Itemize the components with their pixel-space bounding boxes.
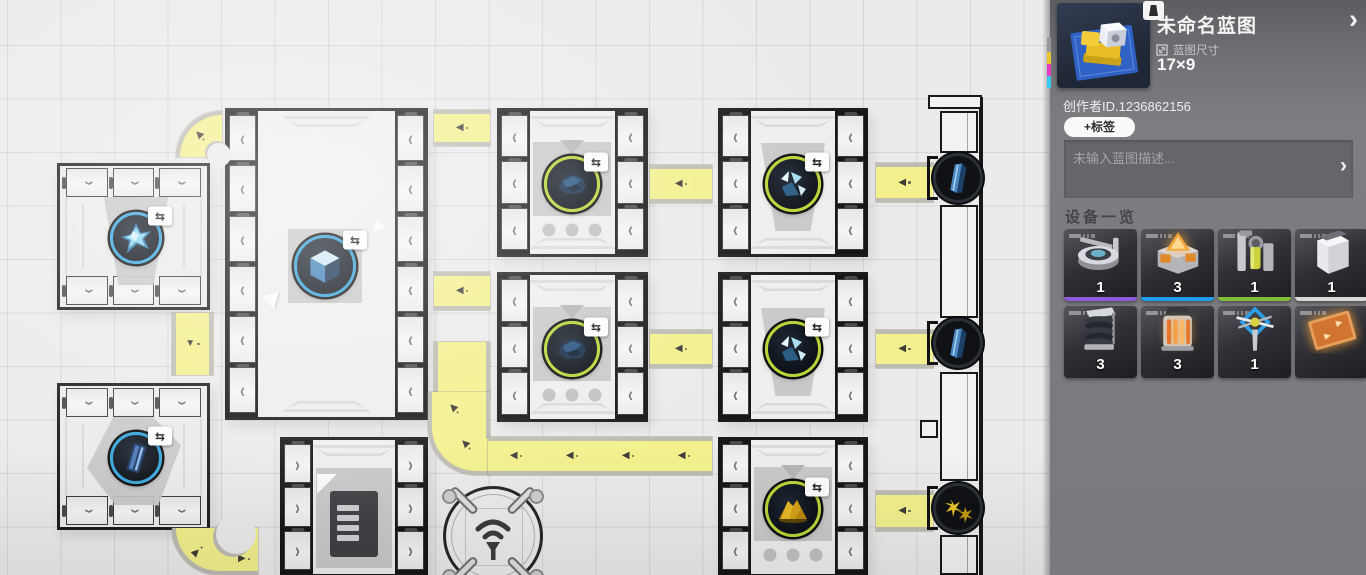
storage-cabinet-icon: [1301, 229, 1363, 282]
port-door[interactable]: ‹: [722, 208, 749, 250]
equipment-count: 1: [1218, 280, 1291, 295]
transfer-badge[interactable]: ⇆: [148, 427, 172, 446]
conveyor-belt[interactable]: ◀: [650, 165, 712, 203]
port-door[interactable]: ›: [284, 531, 311, 570]
port-door[interactable]: ‹: [617, 326, 644, 369]
title-chevron[interactable]: ›: [1349, 4, 1358, 35]
transfer-badge[interactable]: ⇆: [805, 478, 829, 497]
machine-footprint: [543, 389, 602, 402]
port-door[interactable]: ›: [397, 444, 424, 483]
port-door[interactable]: ‹: [397, 165, 424, 211]
conveyor-belt[interactable]: ▼: [172, 313, 213, 375]
equipment-count: 3: [1064, 357, 1137, 372]
ramp-decor: [750, 403, 837, 414]
crystal-refinery[interactable]: ‹ ‹ ‹ ‹ ‹ ‹ ⇆: [718, 108, 868, 257]
port-door[interactable]: ›: [397, 531, 424, 570]
color-strip: [1047, 52, 1051, 64]
wall-decor: [65, 417, 84, 496]
port-door[interactable]: ‹: [66, 496, 108, 525]
equipment-tile-furnace[interactable]: 3: [1141, 306, 1214, 378]
crystal-refinery[interactable]: ‹ ‹ ‹ ‹ ‹ ‹ ⇆: [718, 272, 868, 422]
wall-panel: [940, 205, 978, 318]
size-value: 17×9: [1157, 55, 1195, 75]
transfer-badge[interactable]: ⇆: [584, 153, 608, 172]
port-door[interactable]: ‹: [397, 266, 424, 312]
supply-room[interactable]: › › › › › ›: [280, 437, 428, 575]
tower-bolt: [442, 569, 457, 575]
port-door[interactable]: ‹: [159, 168, 201, 197]
port-door[interactable]: ‹: [837, 487, 864, 526]
rarity-bar: [1218, 374, 1291, 378]
conveyor-curve[interactable]: ◀ ◀: [428, 392, 490, 475]
port-door[interactable]: ‹: [722, 326, 749, 369]
conveyor-panel-icon: [1301, 306, 1363, 359]
port-door[interactable]: ‹: [229, 367, 256, 413]
equipment-tile-assembler[interactable]: 1: [1064, 229, 1137, 301]
port-door[interactable]: ‹: [722, 279, 749, 322]
port-door[interactable]: ‹: [722, 444, 749, 483]
equipment-tile-conveyor-panel[interactable]: [1295, 306, 1366, 378]
ore-node-blue[interactable]: [933, 153, 983, 203]
conveyor-belt[interactable]: ◀: [434, 110, 490, 146]
rarity-bar: [1295, 374, 1366, 378]
conveyor-curve[interactable]: ◀: [176, 111, 222, 157]
port-door[interactable]: ‹: [837, 208, 864, 250]
extractor-column-icon: [1224, 229, 1286, 282]
ramp-decor: [529, 280, 617, 291]
antenna-signal-icon: [471, 512, 515, 565]
machine-footprint: [543, 224, 602, 237]
tower-bolt: [529, 489, 544, 504]
port-door[interactable]: ‹: [229, 316, 256, 362]
port-door[interactable]: ›: [284, 444, 311, 483]
port-door[interactable]: ›: [284, 487, 311, 526]
port-door[interactable]: ‹: [617, 372, 644, 415]
ramp-decor: [750, 116, 837, 127]
transfer-badge[interactable]: ⇆: [805, 318, 829, 337]
rarity-bar: [1064, 297, 1137, 301]
ramp-decor: [750, 445, 837, 456]
port-door[interactable]: ‹: [722, 531, 749, 570]
blueprint-canvas[interactable]: ‹ ‹ ‹ ‹ ‹ ‹ ⇆ ‹ ‹ ‹ ‹ ‹ ‹: [0, 0, 1050, 575]
blueprint-title: 未命名蓝图: [1157, 11, 1257, 38]
conveyor-belt[interactable]: ◀: [876, 163, 933, 202]
powder-refinery[interactable]: ‹ ‹ ‹ ‹ ‹ ‹ ⇆: [718, 437, 868, 575]
port-door[interactable]: ‹: [617, 208, 644, 250]
port-door[interactable]: ‹: [229, 165, 256, 211]
port-door[interactable]: ‹: [159, 388, 201, 417]
ore-node-gold[interactable]: [933, 483, 983, 533]
wall-panel: [940, 535, 978, 575]
ramp-decor: [529, 403, 617, 414]
port-door[interactable]: ‹: [501, 161, 528, 203]
conveyor-belt[interactable]: ◀: [434, 272, 490, 310]
wall-panel: [940, 372, 978, 481]
wall-decor: [183, 417, 202, 496]
conveyor-belt[interactable]: ◀: [876, 491, 933, 531]
equipment-count: 3: [1141, 357, 1214, 372]
port-door[interactable]: ‹: [159, 276, 201, 305]
wall-panel: [940, 111, 978, 153]
creator-id: 创作者ID.1236862156: [1063, 96, 1191, 115]
equipment-tile-smelter[interactable]: 3: [1141, 229, 1214, 301]
port-door[interactable]: ‹: [501, 372, 528, 415]
port-door[interactable]: ‹: [113, 388, 155, 417]
port-door[interactable]: ‹: [837, 279, 864, 322]
add-tag-button[interactable]: +标签: [1064, 117, 1135, 137]
equipment-tile-coil-tower[interactable]: 3: [1064, 306, 1137, 378]
wall-decor: [183, 197, 202, 276]
ramp-decor: [750, 280, 837, 291]
assembler-machine-icon: [1070, 229, 1132, 282]
coil-tower-icon: [1070, 306, 1132, 359]
transfer-badge[interactable]: ⇆: [343, 231, 367, 250]
port-door[interactable]: ‹: [113, 168, 155, 197]
port-door[interactable]: ‹: [159, 496, 201, 525]
conveyor-curve[interactable]: ▶ ▶: [172, 528, 258, 575]
equipment-tile-cabinet[interactable]: 1: [1295, 229, 1366, 301]
equipment-count: 1: [1295, 280, 1366, 295]
room-plate-processor[interactable]: ‹ ‹ ‹ ‹ ‹ ‹ ⇆: [57, 383, 210, 530]
port-door[interactable]: ‹: [397, 316, 424, 362]
conveyor-belt[interactable]: ◀: [650, 330, 712, 368]
ramp-decor: [282, 401, 371, 412]
port-door[interactable]: ‹: [501, 326, 528, 369]
cabinet-icon: [330, 491, 378, 557]
equipment-tile-extractor[interactable]: 1: [1218, 229, 1291, 301]
conveyor-belt[interactable]: ◀: [876, 330, 933, 368]
port-door[interactable]: ‹: [501, 115, 528, 157]
port-door[interactable]: ‹: [617, 161, 644, 203]
port-door[interactable]: ‹: [722, 487, 749, 526]
signal-tower[interactable]: [440, 486, 546, 575]
equipment-list-title: 设备一览: [1065, 206, 1137, 227]
rarity-bar: [1141, 297, 1214, 301]
ramp-decor: [529, 116, 617, 127]
blueprint-info-panel: 未命名蓝图 › 蓝图尺寸 17×9 创作者ID.1236862156 +标签 未…: [1050, 0, 1366, 575]
room-crystal-processor[interactable]: ‹ ‹ ‹ ‹ ‹ ‹ ⇆: [57, 163, 210, 310]
rarity-bar: [1141, 374, 1214, 378]
blueprint-thumbnail[interactable]: [1057, 3, 1150, 88]
port-door[interactable]: ‹: [397, 367, 424, 413]
rarity-bar: [1218, 297, 1291, 301]
equipment-tile-signal-frame[interactable]: 1: [1218, 306, 1291, 378]
port-door[interactable]: ‹: [837, 115, 864, 157]
description-placeholder: 未输入蓝图描述...: [1073, 151, 1175, 166]
smelter-triangle-icon: [1147, 229, 1209, 282]
port-door[interactable]: ‹: [501, 208, 528, 250]
port-door[interactable]: ‹: [722, 372, 749, 415]
port-door[interactable]: ‹: [397, 216, 424, 262]
resource-wall: [928, 95, 988, 575]
ramp-decor: [282, 116, 371, 127]
conveyor-belt[interactable]: [434, 342, 490, 398]
tower-bolt: [442, 489, 457, 504]
wall-cap: [928, 95, 982, 109]
wall-notch: [920, 420, 938, 438]
ore-refinery[interactable]: ‹ ‹ ‹ ‹ ‹ ‹ ⇆: [497, 272, 648, 422]
blueprint-thumbnail-art: [1057, 3, 1150, 88]
tower-bolt: [529, 569, 544, 575]
port-door[interactable]: ‹: [722, 161, 749, 203]
color-strip: [1047, 76, 1051, 88]
port-door[interactable]: ‹: [229, 115, 256, 161]
port-door[interactable]: ‹: [617, 279, 644, 322]
blueprint-editor: ‹ ‹ ‹ ‹ ‹ ‹ ⇆ ‹ ‹ ‹ ‹ ‹ ‹: [0, 0, 1366, 575]
port-door[interactable]: ›: [397, 487, 424, 526]
port-door[interactable]: ‹: [837, 372, 864, 415]
port-door[interactable]: ‹: [617, 115, 644, 157]
port-door[interactable]: ‹: [229, 266, 256, 312]
color-strip: [1047, 38, 1051, 52]
ramp-decor: [750, 238, 837, 249]
ore-node-blue[interactable]: [933, 318, 983, 368]
port-door[interactable]: ‹: [837, 161, 864, 203]
port-door[interactable]: ‹: [837, 326, 864, 369]
storage-depot[interactable]: ‹ ‹ ‹ ‹ ‹ ‹ ‹ ‹ ‹ ‹ ‹ ‹ ⇆: [225, 108, 428, 420]
port-door[interactable]: ‹: [66, 168, 108, 197]
port-door[interactable]: ‹: [837, 444, 864, 483]
port-door[interactable]: ‹: [837, 531, 864, 570]
machine-footprint: [764, 549, 823, 562]
equipment-count: 3: [1141, 280, 1214, 295]
ramp-decor: [529, 238, 617, 249]
description-chevron[interactable]: ›: [1340, 154, 1347, 178]
port-door[interactable]: ‹: [501, 279, 528, 322]
equipment-count: 1: [1064, 280, 1137, 295]
transfer-badge[interactable]: ⇆: [148, 207, 172, 226]
equipment-count: 1: [1218, 357, 1291, 372]
ramp-decor: [311, 445, 397, 456]
rarity-bar: [1295, 297, 1366, 301]
port-door[interactable]: ‹: [66, 388, 108, 417]
equipment-grid: 1 3 1 1: [1064, 229, 1366, 378]
port-door[interactable]: ‹: [229, 216, 256, 262]
transfer-badge[interactable]: ⇆: [805, 153, 829, 172]
port-door[interactable]: ‹: [66, 276, 108, 305]
port-door[interactable]: ‹: [397, 115, 424, 161]
color-strip: [1047, 64, 1051, 76]
rarity-bar: [1064, 374, 1137, 378]
ore-refinery[interactable]: ‹ ‹ ‹ ‹ ‹ ‹ ⇆: [497, 108, 648, 257]
wall-decor: [65, 197, 84, 276]
port-door[interactable]: ‹: [722, 115, 749, 157]
heat-furnace-icon: [1147, 306, 1209, 359]
signal-frame-icon: [1224, 306, 1286, 359]
transfer-badge[interactable]: ⇆: [584, 318, 608, 337]
description-input[interactable]: 未输入蓝图描述... ›: [1064, 140, 1353, 198]
conveyor-belt[interactable]: ◀ ◀ ◀ ◀: [488, 437, 712, 475]
